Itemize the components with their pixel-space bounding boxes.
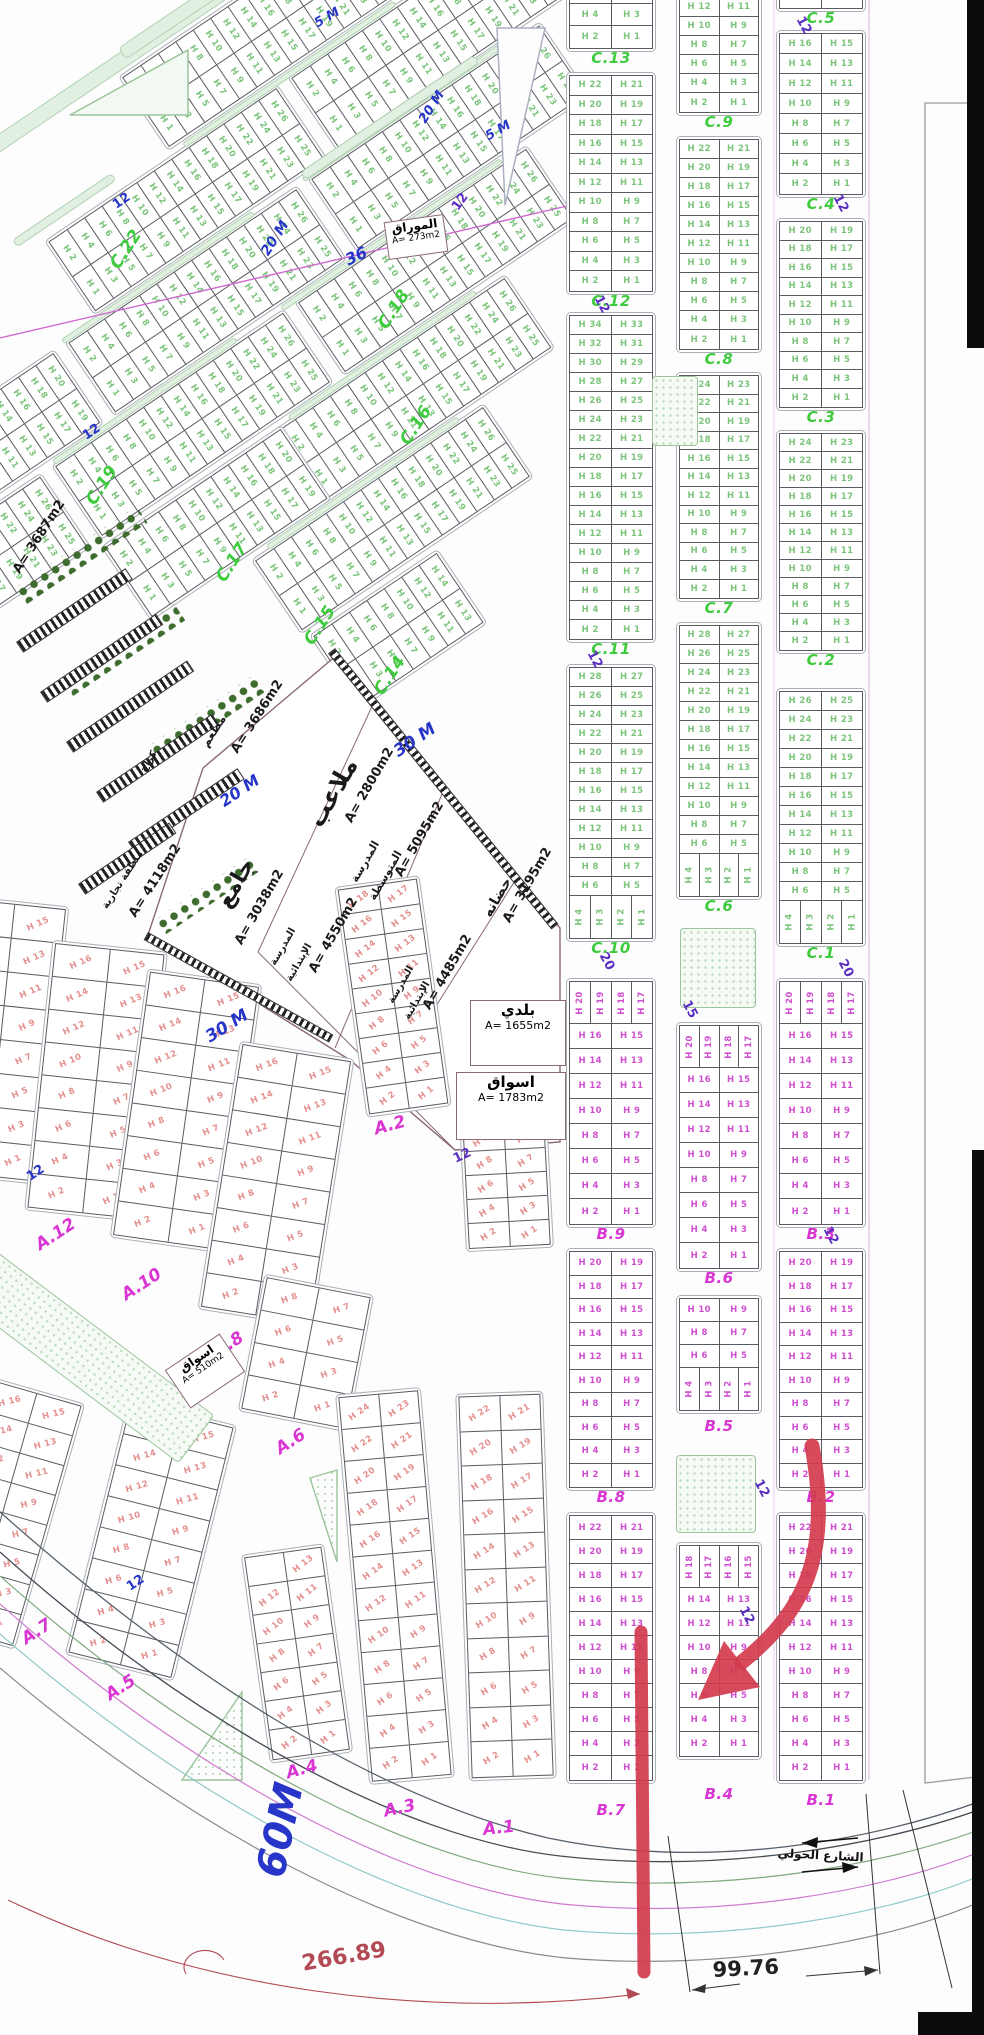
plot-cell: H 20 bbox=[780, 1252, 822, 1275]
plot-block-B.7: H 22H 21H 20H 19H 18H 17H 16H 15H 14H 13… bbox=[566, 1512, 656, 1784]
street-number: 20 bbox=[835, 957, 857, 980]
plot-cell: H 1 bbox=[842, 901, 862, 943]
plot-cell: H 10 bbox=[133, 1071, 191, 1110]
plot-cell: H 12 bbox=[356, 1586, 398, 1620]
block-label: C.2 bbox=[763, 651, 879, 669]
plot-cell: H 9 bbox=[152, 1509, 209, 1552]
plot-block: H 12H 11H 10H 9H 8H 7H 6H 5H 4H 3H 2H 1 bbox=[458, 1096, 554, 1252]
plot-cell: H 23 bbox=[822, 711, 863, 729]
plot-cell: H 21 bbox=[720, 683, 759, 701]
plot-cell: H 8 bbox=[261, 1278, 319, 1319]
plot-cell: H 4 bbox=[470, 1706, 512, 1741]
plot-cell: H 10 bbox=[570, 1099, 612, 1123]
plot-cell: H 10 bbox=[570, 1370, 612, 1393]
plot-cell: H 12 bbox=[570, 1636, 612, 1659]
plot-cell: H 27 bbox=[720, 626, 759, 644]
plot-cell: H 1 bbox=[509, 1220, 550, 1246]
plot-cell: H 2 bbox=[680, 1243, 720, 1268]
block-label: B.8 bbox=[553, 1488, 669, 1506]
plot-block-C.11: H 34H 33H 32H 31H 30H 29H 28H 27H 26H 25… bbox=[566, 312, 656, 643]
plot-cell: H 5 bbox=[177, 1144, 234, 1183]
block-label: C.5 bbox=[763, 9, 879, 27]
plot-cell: H 20 bbox=[780, 222, 822, 240]
scan-edge bbox=[918, 2012, 984, 2035]
plot-cell: H 18 bbox=[612, 982, 633, 1023]
tree-row bbox=[58, 604, 185, 699]
plot-cell: H 14 bbox=[233, 1078, 292, 1118]
plot-cell: H 3 bbox=[612, 252, 653, 271]
plot-cell: H 14 bbox=[680, 1588, 720, 1611]
plot-cell: H 11 bbox=[822, 296, 863, 314]
block-label: B.1 bbox=[763, 1791, 879, 1809]
plot-cell: H 26 bbox=[570, 687, 612, 705]
plot-cell: H 8 bbox=[780, 578, 822, 595]
plot-cell: H 10 bbox=[780, 844, 822, 862]
block-label-A.10: A.10 bbox=[118, 1264, 165, 1305]
tree-row bbox=[152, 855, 262, 937]
scan-edge bbox=[967, 0, 984, 348]
plot-cell: H 23 bbox=[720, 376, 759, 394]
plot-cell: H 12 bbox=[570, 1074, 612, 1098]
plot-cell: H 20 bbox=[570, 1540, 612, 1563]
plot-cell: H 6 bbox=[36, 1108, 94, 1146]
plot-block-B.8: H 20H 19H 18H 17H 16H 15H 14H 13H 12H 11… bbox=[566, 1248, 656, 1491]
street-direction-arrow bbox=[802, 1838, 858, 1843]
plot-block: H 8H 7H 6H 5H 4H 3H 2H 1 bbox=[238, 1274, 375, 1433]
plot-cell: H 4 bbox=[363, 1058, 405, 1087]
plot-cell: H 1 bbox=[720, 330, 759, 349]
plot-cell: H 12 bbox=[570, 820, 612, 838]
plot-cell: H 26 bbox=[680, 645, 720, 663]
plot-cell: H 20 bbox=[780, 470, 822, 487]
plot-cell: H 21 bbox=[382, 1423, 423, 1457]
plot-cell: H 22 bbox=[780, 730, 822, 748]
plot-cell: H 10 bbox=[680, 1143, 720, 1167]
plot-cell: H 12 bbox=[137, 1038, 195, 1077]
boundary-wall-hatch bbox=[144, 932, 334, 1043]
plot-cell: H 7 bbox=[720, 36, 759, 54]
plot-block-B.6: H 20H 19H 18H 17H 16H 15H 14H 13H 12H 11… bbox=[676, 1022, 762, 1272]
plot-cell: H 2 bbox=[570, 271, 612, 291]
plot-cell: H 18 bbox=[780, 488, 822, 505]
plot-cell: H 20 bbox=[345, 1458, 387, 1492]
plot-cell: H 4 bbox=[570, 896, 591, 938]
plot-block: H 16H 15H 14H 13H 12H 11H 10H 9H 8H 7H 6… bbox=[0, 1376, 85, 1650]
plot-cell: H 6 bbox=[780, 1708, 822, 1731]
plot-cell: H 7 bbox=[93, 1081, 150, 1118]
plot-cell: H 2 bbox=[367, 1083, 410, 1113]
plot-cell: H 14 bbox=[570, 1323, 612, 1346]
plot-cell: H 4 bbox=[780, 154, 822, 173]
plot-cell: H 14 bbox=[142, 1005, 200, 1044]
plot-cell: H 5 bbox=[720, 835, 759, 853]
plot-cell: H 16 bbox=[570, 1299, 612, 1322]
plot-cell: H 16 bbox=[124, 1403, 182, 1446]
plot-cell: H 1 bbox=[168, 1209, 226, 1249]
plot-block-C.2: H 24H 23H 22H 21H 20H 19H 18H 17H 16H 15… bbox=[776, 430, 866, 654]
plot-cell: H 2 bbox=[28, 1174, 86, 1213]
plot-cell: H 16 bbox=[570, 782, 612, 800]
plot-cell: H 9 bbox=[822, 315, 863, 333]
plot-cell: H 13 bbox=[8, 939, 62, 977]
plot-cell: H 13 bbox=[720, 1093, 759, 1117]
plot-cell: H 12 bbox=[228, 1110, 287, 1150]
plot-cell: H 23 bbox=[379, 1391, 420, 1425]
plot-cell: H 13 bbox=[822, 1612, 863, 1635]
plot-cell: H 6 bbox=[466, 1174, 508, 1199]
plot-cell: H 7 bbox=[720, 1168, 759, 1192]
plot-cell: H 8 bbox=[680, 1660, 720, 1683]
plot-cell: H 1 bbox=[822, 1199, 863, 1224]
plot-cell: H 5 bbox=[266, 1217, 324, 1257]
plot-cell: H 11 bbox=[612, 1346, 653, 1369]
block-label: C.6 bbox=[663, 897, 775, 915]
facility-label: A= 3038m2 bbox=[232, 867, 287, 947]
plot-cell: H 30 bbox=[570, 354, 612, 372]
dim-line-266 bbox=[8, 1900, 640, 2003]
plot-cell: H 2 bbox=[70, 1621, 129, 1665]
plot-cell: H 22 bbox=[780, 452, 822, 469]
facility-label: جامع bbox=[212, 854, 260, 912]
plot-cell: H 24 bbox=[680, 376, 720, 394]
plot-cell: H 9 bbox=[720, 1299, 759, 1321]
plot-cell: H 7 bbox=[612, 1684, 653, 1707]
plot-cell: H 9 bbox=[277, 1151, 335, 1191]
plot-cell: H 3 bbox=[612, 1174, 653, 1198]
plot-cell: H 12 bbox=[109, 1465, 167, 1508]
block-label-A.6: A.6 bbox=[272, 1425, 310, 1459]
plot-cell: H 2 bbox=[612, 896, 633, 938]
plot-cell: H 15 bbox=[612, 1024, 653, 1048]
plot-cell: H 8 bbox=[680, 1168, 720, 1192]
plot-block: H 16H 15H 14H 13H 12H 11H 10H 9H 8H 7H 6… bbox=[24, 940, 168, 1223]
plot-cell: H 21 bbox=[612, 1516, 653, 1539]
plot-cell: H 19 bbox=[700, 1026, 720, 1067]
plot-cell: H 10 bbox=[780, 94, 822, 113]
plot-cell: H 8 bbox=[680, 36, 720, 54]
plot-cell: H 10 bbox=[680, 1636, 720, 1659]
plot-cell: H 7 bbox=[612, 858, 653, 876]
plot-cell: H 4 bbox=[207, 1241, 266, 1281]
plot-cell: H 3 bbox=[822, 1440, 863, 1463]
plot-cell: H 13 bbox=[822, 806, 863, 824]
facility-label: الإبتدائية bbox=[402, 980, 432, 1022]
plot-cell: H 4 bbox=[32, 1141, 90, 1179]
block-label-A.7: A.7 bbox=[18, 1615, 56, 1649]
plot-cell: H 15 bbox=[822, 1588, 863, 1611]
plot-block-B.1: H 22H 21H 20H 19H 18H 17H 16H 15H 14H 13… bbox=[776, 1512, 866, 1784]
plot-cell: H 5 bbox=[90, 1114, 147, 1151]
block-label: B.3 bbox=[763, 1225, 879, 1243]
plot-cell: H 2 bbox=[780, 389, 822, 408]
facility-label: المدرسة bbox=[386, 964, 416, 1005]
street-number: 15 bbox=[679, 998, 701, 1021]
plot-cell: H 9 bbox=[97, 1048, 154, 1085]
plot-cell: H 14 bbox=[680, 1093, 720, 1117]
plot-cell: H 11 bbox=[720, 235, 759, 253]
plot-cell: H 16 bbox=[780, 34, 822, 53]
plot-cell: H 5 bbox=[720, 1684, 759, 1707]
plot-cell: H 19 bbox=[822, 1252, 863, 1275]
plot-cell: H 2 bbox=[570, 1199, 612, 1224]
plot-cell: H 13 bbox=[612, 1323, 653, 1346]
plot-cell: H 3 bbox=[173, 1176, 230, 1215]
plot-cell: H 26 bbox=[570, 392, 612, 410]
plot-cell: H 5 bbox=[720, 1193, 759, 1217]
plot-cell: H 12 bbox=[680, 1118, 720, 1142]
plot-cell: H 34 bbox=[570, 316, 612, 334]
facility-label: مطعم bbox=[198, 712, 229, 749]
plot-cell: H 2 bbox=[680, 93, 720, 112]
plot-cell: H 6 bbox=[780, 352, 822, 370]
plot-cell: H 23 bbox=[612, 411, 653, 429]
plot-cell: H 14 bbox=[570, 1612, 612, 1635]
plot-cell: H 2 bbox=[680, 330, 720, 349]
plot-cell: H 7 bbox=[822, 863, 863, 881]
plot-cell: H 12 bbox=[680, 1612, 720, 1635]
plot-cell: H 24 bbox=[570, 706, 612, 724]
plot-cell: H 6 bbox=[365, 1682, 407, 1716]
plot-cell: H 15 bbox=[612, 1299, 653, 1322]
plot-cell: H 18 bbox=[570, 115, 612, 134]
facility-label: المدرسة bbox=[348, 839, 382, 885]
plot-cell: H 8 bbox=[570, 1684, 612, 1707]
plot-block-C.8: H 22H 21H 20H 19H 18H 17H 16H 15H 14H 13… bbox=[676, 136, 762, 353]
street-number: 12 bbox=[751, 1477, 773, 1500]
block-label: B.9 bbox=[553, 1225, 669, 1243]
plot-cell: H 15 bbox=[822, 34, 863, 53]
plot-cell: H 5 bbox=[822, 1149, 863, 1173]
plot-cell: H 17 bbox=[842, 982, 862, 1023]
facility-name: اسواق bbox=[457, 1073, 565, 1091]
plot-cell: H 14 bbox=[0, 933, 11, 971]
plot-cell: H 11 bbox=[612, 1074, 653, 1098]
plot-cell: H 5 bbox=[720, 292, 759, 310]
plot-cell: H 11 bbox=[100, 1015, 157, 1052]
road-lane-magenta bbox=[0, 1604, 984, 1908]
plot-cell: H 3 bbox=[612, 601, 653, 619]
plot-cell: H 5 bbox=[612, 1149, 653, 1173]
plot-cell: H 4 bbox=[367, 1713, 409, 1747]
plot-cell: H 6 bbox=[780, 882, 822, 900]
plot-cell: H 20 bbox=[680, 702, 720, 720]
plot-cell: H 10 bbox=[42, 1043, 100, 1081]
plot-cell: H 8 bbox=[468, 1637, 510, 1672]
plot-cell: H 16 bbox=[780, 1024, 822, 1048]
plot-cell: H 3 bbox=[612, 4, 653, 25]
plot-cell: H 9 bbox=[612, 839, 653, 857]
plot-cell: H 3 bbox=[720, 74, 759, 92]
block-label-A.2: A.2 bbox=[372, 1112, 408, 1140]
street-number: 20 bbox=[596, 950, 618, 973]
plot-cell: H 4 bbox=[680, 1708, 720, 1731]
plot-cell: H 13 bbox=[612, 1612, 653, 1635]
plot-cell: H 10 bbox=[780, 560, 822, 577]
plot-cell: H 5 bbox=[510, 1671, 551, 1706]
plot-cell: H 27 bbox=[612, 373, 653, 391]
plot-cell: H 10 bbox=[680, 17, 720, 35]
plot-cell: H 16 bbox=[0, 1381, 37, 1423]
plot-cell: H 12 bbox=[249, 1582, 291, 1615]
plot-cell: H 22 bbox=[570, 1516, 612, 1539]
plot-cell: H 6 bbox=[570, 0, 612, 3]
plot-cell: H 11 bbox=[612, 1636, 653, 1659]
plot-cell: H 3 bbox=[700, 1368, 720, 1410]
plot-block-C.12: H 22H 21H 20H 19H 18H 17H 16H 15H 14H 13… bbox=[566, 72, 656, 295]
plot-cell: H 1 bbox=[822, 0, 863, 8]
plot-cell: H 16 bbox=[570, 1024, 612, 1048]
plot-cell: H 19 bbox=[612, 744, 653, 762]
facility-name: اسواق bbox=[166, 1335, 227, 1382]
plot-cell: H 16 bbox=[351, 1522, 393, 1556]
plot-block-C.13: H 8H 7H 6H 5H 4H 3H 2H 1C.13 bbox=[566, 0, 656, 52]
plot-cell: H 12 bbox=[780, 825, 822, 843]
plot-cell: H 11 bbox=[506, 1567, 547, 1602]
plot-cell: H 1 bbox=[720, 1243, 759, 1268]
park-triangle bbox=[310, 1470, 337, 1562]
plot-cell: H 17 bbox=[822, 1564, 863, 1587]
plot-cell: H 17 bbox=[822, 488, 863, 505]
plot-cell: H 7 bbox=[271, 1184, 329, 1224]
plot-cell: H 6 bbox=[680, 292, 720, 310]
block-label-A.8: A.8 bbox=[210, 1328, 248, 1362]
plot-cell: H 6 bbox=[360, 1034, 402, 1063]
plot-cell: H 9 bbox=[612, 544, 653, 562]
plot-cell: H 5 bbox=[822, 1708, 863, 1731]
plot-cell: H 9 bbox=[822, 1370, 863, 1393]
plot-block-C.4: H 16H 15H 14H 13H 12H 11H 10H 9H 8H 7H 6… bbox=[776, 30, 866, 198]
street-direction-arrow bbox=[802, 1867, 858, 1872]
plot-block-B.2: H 20H 19H 18H 17H 16H 15H 14H 13H 12H 11… bbox=[776, 1248, 866, 1491]
plot-cell: H 20 bbox=[570, 982, 591, 1023]
plot-cell: H 19 bbox=[822, 222, 863, 240]
plot-cell: H 7 bbox=[822, 1684, 863, 1707]
block-label: B.7 bbox=[553, 1801, 669, 1819]
street-number: 12 bbox=[736, 1604, 758, 1627]
plot-cell: H 1 bbox=[632, 896, 652, 938]
plot-cell: H 18 bbox=[680, 178, 720, 196]
plot-cell: H 12 bbox=[349, 959, 391, 988]
plot-cell: H 19 bbox=[612, 449, 653, 467]
plot-cell: H 16 bbox=[570, 1588, 612, 1611]
plot-cell: H 19 bbox=[822, 470, 863, 487]
street-name: الشارع الحولي bbox=[777, 1846, 864, 1864]
plot-cell: H 22 bbox=[459, 1396, 501, 1431]
plot-cell: H 14 bbox=[780, 806, 822, 824]
plot-cell: H 16 bbox=[680, 450, 720, 468]
plot-cell: H 16 bbox=[780, 259, 822, 277]
plot-cell: H 19 bbox=[612, 96, 653, 115]
plot-cell: H 8 bbox=[780, 1684, 822, 1707]
plot-cell: H 1 bbox=[409, 1742, 450, 1777]
plot-cell: H 19 bbox=[801, 982, 822, 1023]
plot-cell: H 1 bbox=[720, 580, 759, 599]
plot-cell: H 13 bbox=[720, 1588, 759, 1611]
plot-cell: H 22 bbox=[570, 725, 612, 743]
plot-cell: H 2 bbox=[570, 1756, 612, 1780]
plot-cell: H 8 bbox=[0, 1500, 2, 1542]
plot-cell: H 20 bbox=[570, 744, 612, 762]
plot-cell: H 2 bbox=[370, 1745, 412, 1780]
plot-cell: H 4 bbox=[680, 74, 720, 92]
plot-cell: H 14 bbox=[680, 216, 720, 234]
street-width-label: 30 M bbox=[202, 1005, 252, 1047]
plot-cell: H 10 bbox=[780, 1370, 822, 1393]
plot-cell: H 6 bbox=[570, 1417, 612, 1440]
plot-cell: H 10 bbox=[570, 1660, 612, 1683]
street-width-label: 20 M bbox=[216, 771, 263, 811]
plot-cell: H 18 bbox=[348, 1490, 390, 1524]
plot-cell: H 4 bbox=[570, 4, 612, 25]
plot-cell: H 8 bbox=[570, 1393, 612, 1416]
plot-cell: H 4 bbox=[570, 601, 612, 619]
plot-cell: H 6 bbox=[255, 1311, 313, 1352]
plot-cell: H 16 bbox=[680, 740, 720, 758]
plot-cell: H 20 bbox=[680, 413, 720, 431]
plot-cell: H 10 bbox=[680, 1299, 720, 1321]
plot-cell: H 8 bbox=[465, 1150, 507, 1175]
plot-cell: H 15 bbox=[822, 1299, 863, 1322]
park-band bbox=[0, 1235, 215, 1463]
plot-cell: H 22 bbox=[680, 683, 720, 701]
plot-cell: H 13 bbox=[612, 1049, 653, 1073]
plot-cell: H 14 bbox=[780, 524, 822, 541]
plot-cell: H 2 bbox=[822, 901, 843, 943]
plot-cell: H 7 bbox=[822, 333, 863, 351]
plot-cell: H 20 bbox=[680, 159, 720, 177]
plot-cell: H 28 bbox=[680, 626, 720, 644]
plot-cell: H 16 bbox=[463, 1500, 505, 1535]
plot-cell: H 21 bbox=[500, 1395, 541, 1430]
plot-cell: H 1 bbox=[121, 1633, 179, 1677]
park-triangle bbox=[182, 1692, 242, 1780]
plot-block: H 16H 15H 14H 13H 12H 11H 10H 9H 8H 7H 6… bbox=[0, 895, 69, 1185]
plot-cell: H 4 bbox=[570, 1732, 612, 1755]
facility-label: كراج bbox=[138, 749, 160, 774]
plot-cell: H 13 bbox=[505, 1533, 546, 1568]
block-label-A.4: A.4 bbox=[284, 1756, 320, 1784]
plot-cell: H 7 bbox=[612, 1393, 653, 1416]
plot-cell: H 4 bbox=[570, 252, 612, 271]
red-arrow-stem bbox=[742, 1446, 818, 1662]
plot-cell: H 3 bbox=[822, 370, 863, 388]
plot-cell: H 2 bbox=[469, 1222, 511, 1248]
road-lane-green bbox=[0, 1576, 984, 1883]
plot-cell: H 11 bbox=[4, 972, 58, 1010]
plot-cell: H 14 bbox=[570, 1049, 612, 1073]
plot-cell: H 9 bbox=[1, 1006, 55, 1044]
plot-block-C.6: H 28H 27H 26H 25H 24H 23H 22H 21H 20H 19… bbox=[676, 622, 762, 900]
plot-cell: H 17 bbox=[720, 721, 759, 739]
facility-aswaq-small: اسواقA= 510m2 bbox=[165, 1333, 245, 1408]
plot-cell: H 11 bbox=[822, 825, 863, 843]
plot-cell: H 1 bbox=[720, 1732, 759, 1756]
plot-cell: H 12 bbox=[780, 542, 822, 559]
plot-cell: H 9 bbox=[720, 1636, 759, 1659]
plot-cell: H 4 bbox=[780, 1174, 822, 1198]
block-label: C.8 bbox=[663, 350, 775, 368]
plot-cell: H 22 bbox=[780, 1516, 822, 1539]
plot-block-B.9: H 20H 19H 18H 17H 16H 15H 14H 13H 12H 11… bbox=[566, 978, 656, 1228]
plot-cell: H 17 bbox=[612, 115, 653, 134]
plot-cell: H 1 bbox=[822, 1464, 863, 1488]
plot-cell: H 2 bbox=[570, 1464, 612, 1488]
plot-cell: H 8 bbox=[780, 114, 822, 133]
plot-cell: H 12 bbox=[0, 1441, 20, 1483]
parking-hatch bbox=[96, 714, 219, 803]
plot-cell: H 3 bbox=[822, 154, 863, 173]
plot-cell: H 1 bbox=[406, 1078, 448, 1108]
